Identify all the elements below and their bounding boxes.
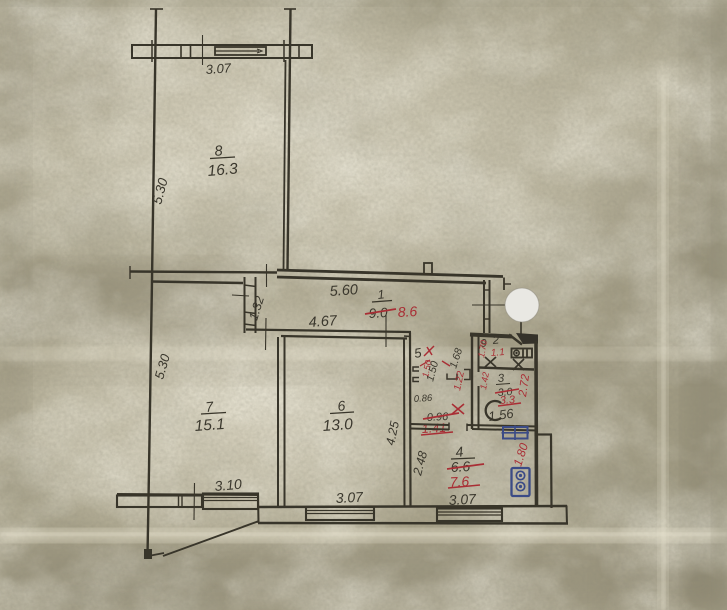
svg-text:0.86: 0.86 [413,393,433,405]
svg-text:4.67: 4.67 [308,313,338,331]
svg-text:5.60: 5.60 [329,282,358,300]
svg-text:3.10: 3.10 [214,476,243,494]
svg-text:1: 1 [377,287,385,302]
svg-text:16.3: 16.3 [207,160,239,180]
svg-text:13.0: 13.0 [322,416,354,435]
svg-text:3.07: 3.07 [335,489,364,506]
svg-text:8.6: 8.6 [397,303,417,320]
svg-text:1.1: 1.1 [490,347,505,359]
svg-text:15.1: 15.1 [194,416,225,435]
svg-text:3.07: 3.07 [205,60,232,77]
